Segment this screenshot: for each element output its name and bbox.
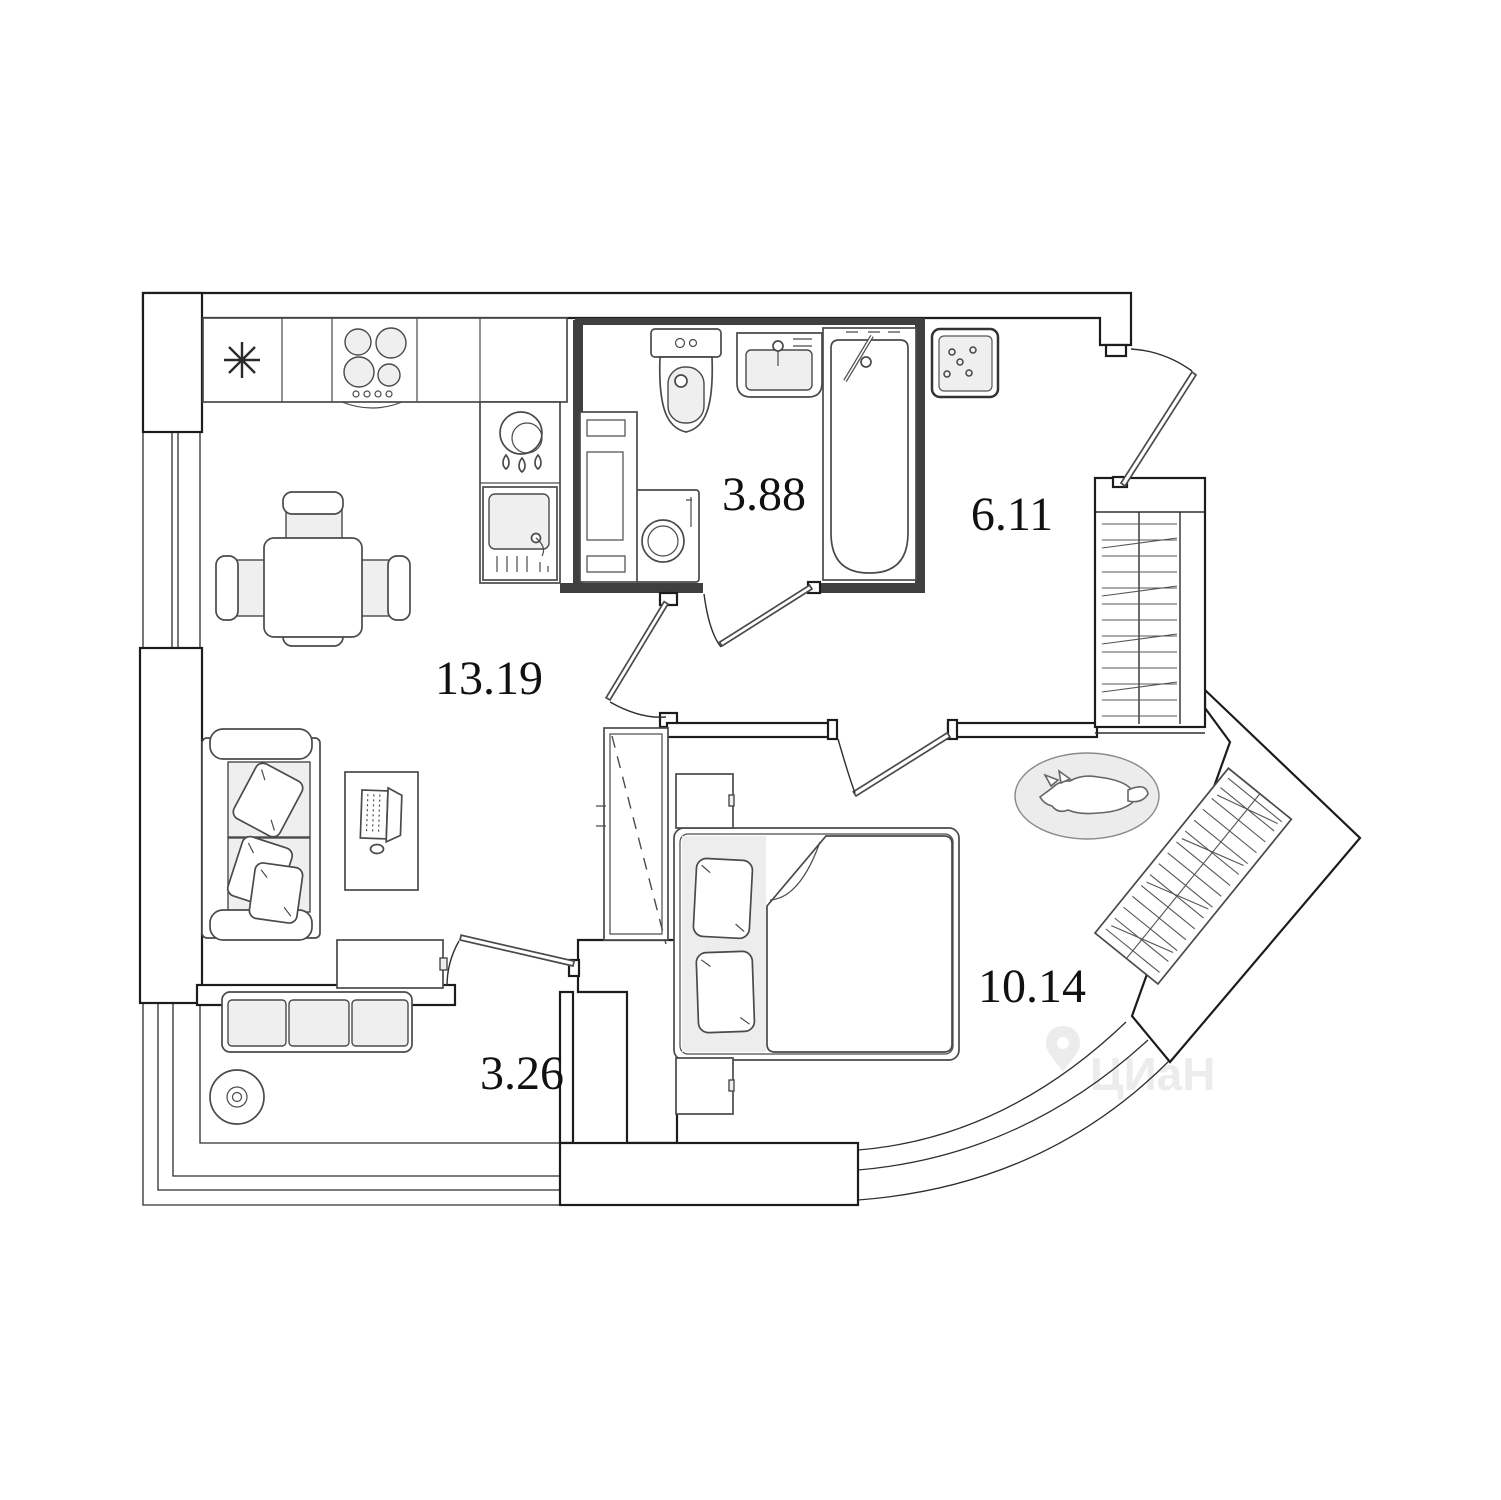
bathroom-door	[704, 582, 820, 647]
left-window	[143, 432, 200, 648]
area-label-bedroom: 10.14	[978, 960, 1086, 1013]
bedroom-door	[838, 733, 950, 796]
washing-machine-icon	[635, 490, 699, 582]
left-upper-wall	[143, 293, 202, 432]
pet-bed	[1015, 753, 1159, 839]
dining-table	[264, 538, 362, 637]
left-mid-wall	[140, 648, 202, 1003]
balcony-bench	[222, 992, 412, 1052]
toilet-icon	[651, 329, 721, 432]
sofa-group	[202, 729, 320, 940]
bedroom-top-wall-right	[948, 723, 1097, 737]
double-bed	[674, 828, 959, 1060]
sliding-wardrobe	[596, 728, 668, 944]
tv-cabinet	[337, 940, 447, 988]
bottom-wall	[560, 1143, 858, 1205]
nightstand-bottom	[676, 1058, 734, 1114]
floor-plan-page: ЦИаН	[0, 0, 1501, 1500]
living-room-door	[606, 602, 668, 718]
nightstand-top	[676, 774, 734, 828]
hallway-wardrobe	[1095, 478, 1205, 727]
desk-with-laptop	[345, 772, 418, 890]
bathtub-icon	[823, 328, 916, 580]
floor-plan-svg: ЦИаН	[0, 0, 1501, 1500]
washbasin-icon	[737, 333, 822, 397]
watermark-text: ЦИаН	[1090, 1048, 1215, 1100]
fridge-asterisk-icon	[224, 342, 260, 378]
kitchen-sink-icon	[483, 487, 557, 580]
area-label-kitchen-living: 13.19	[435, 652, 543, 705]
flower-pot	[210, 1070, 264, 1124]
shelf-cabinet-icon	[580, 412, 637, 582]
dining-table-group	[216, 492, 410, 646]
water-heater-icon	[500, 412, 542, 472]
entry-door	[1106, 345, 1196, 487]
balcony-door	[447, 935, 579, 986]
area-label-balcony: 3.26	[480, 1047, 564, 1100]
area-label-bathroom: 3.88	[722, 468, 806, 521]
bedroom-left-pier	[578, 940, 677, 1143]
vent-shaft-icon	[932, 329, 998, 397]
bedroom-top-wall-left	[667, 723, 836, 737]
area-label-hallway: 6.11	[971, 488, 1053, 541]
